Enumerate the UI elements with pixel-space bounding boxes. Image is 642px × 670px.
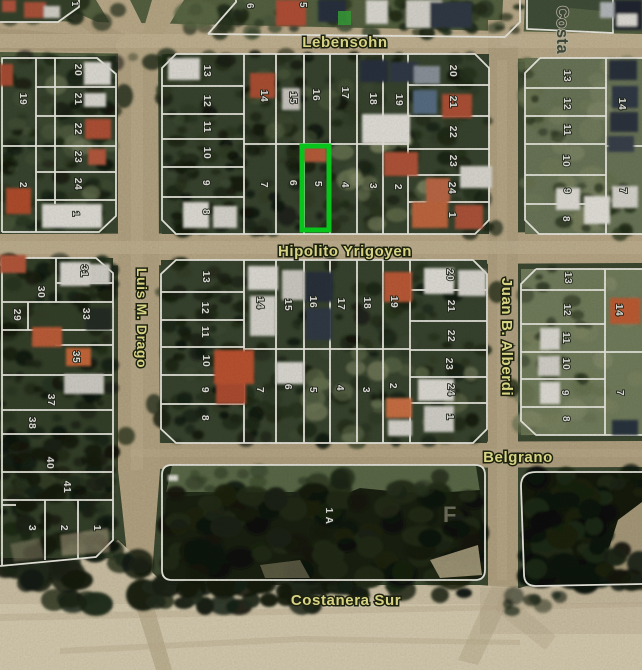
svg-text:Lebensohn: Lebensohn [302,34,387,51]
svg-text:Hipolito Yrigoyen: Hipolito Yrigoyen [278,243,412,260]
svg-text:Luis M. Drago: Luis M. Drago [134,268,150,368]
svg-text:Costanera Sur: Costanera Sur [291,592,401,609]
svg-text:Juan B. Alberdi: Juan B. Alberdi [498,278,515,396]
svg-text:Belgrano: Belgrano [483,449,553,466]
svg-text:Costa: Costa [553,6,571,55]
